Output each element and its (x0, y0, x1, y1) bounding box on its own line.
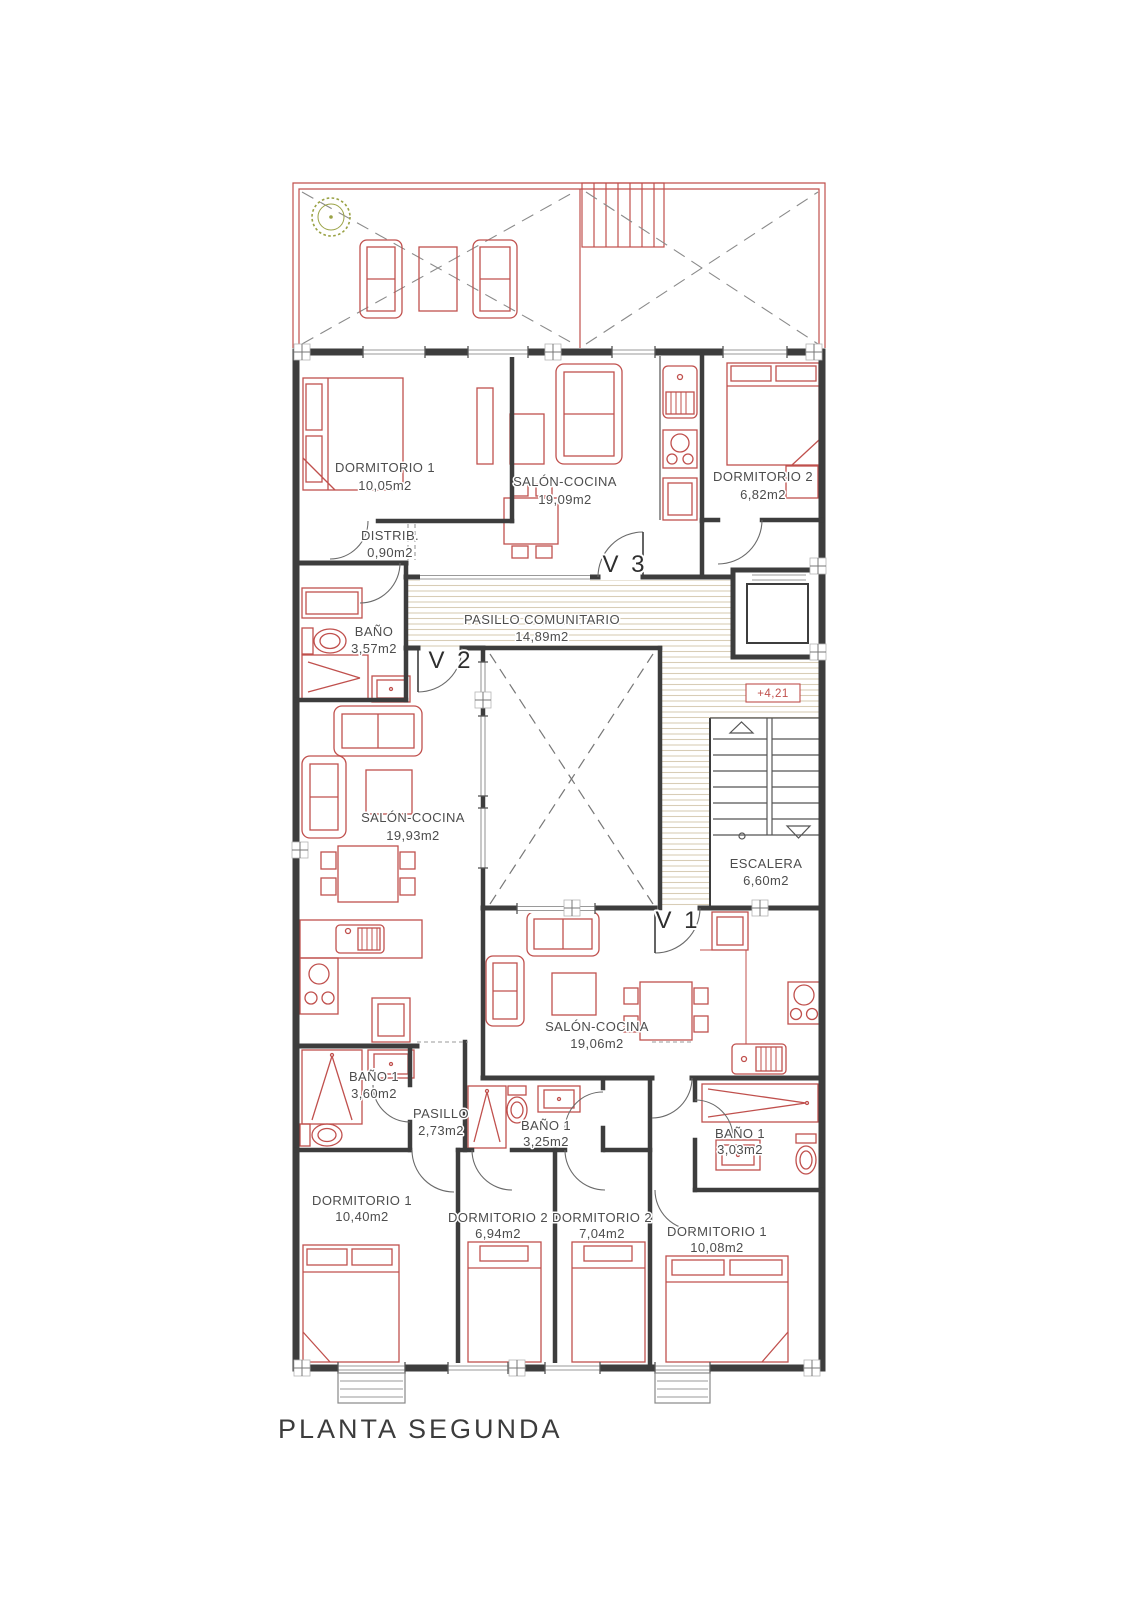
side-table-icon (366, 770, 412, 814)
stairs-up-arrow-icon (730, 722, 753, 733)
room-label-dormitorio2-top: DORMITORIO 2 (713, 469, 813, 484)
shower-icon (302, 655, 368, 700)
room-area-dormitorio1-top: 10,05m2 (358, 478, 411, 493)
kitchen-counter-edge (700, 950, 746, 1044)
window (448, 1362, 508, 1374)
room-label-pasillo-comunitario: PASILLO COMUNITARIO (464, 612, 620, 627)
kitchen-counter (300, 920, 422, 1042)
room-area-pasillo: 2,73m2 (418, 1123, 464, 1138)
sofa-icon (527, 912, 599, 956)
roof-dash-lines (302, 192, 818, 344)
shower-icon (702, 1084, 818, 1122)
room-label-salon-bottom: SALÓN-COCINA (545, 1019, 649, 1034)
bed-icon (468, 1242, 541, 1362)
kitchen-counter (660, 356, 697, 520)
room-label-dormitorio1-top: DORMITORIO 1 (335, 460, 435, 475)
entry-marker-v2: V 2 (428, 647, 473, 674)
room-label-distrib: DISTRIB. (361, 528, 419, 543)
tree-icon (312, 198, 350, 236)
room-area-dormitorio1-br: 10,08m2 (690, 1240, 743, 1255)
room-area-salon-mid: 19,93m2 (386, 828, 439, 843)
window (655, 1362, 710, 1374)
shower-icon (468, 1086, 506, 1148)
bathtub-icon (302, 588, 362, 618)
room-area-bano1-mid: 3,25m2 (523, 1134, 569, 1149)
entry-marker-v1: V 1 (655, 907, 700, 934)
armchair-icon (302, 756, 346, 838)
terrace-table-icon (419, 247, 457, 311)
sink-icon (732, 1044, 786, 1074)
entry-marker-v3: V 3 (602, 551, 647, 578)
room-label-dormitorio2-br: DORMITORIO 2 (552, 1210, 652, 1225)
appliance-icon (372, 998, 410, 1042)
fridge-icon (663, 478, 697, 520)
hob-icon (663, 430, 697, 468)
room-area-dormitorio2-br: 7,04m2 (579, 1226, 625, 1241)
window (338, 1362, 405, 1374)
hob-icon (300, 958, 338, 1014)
sofa-icon (556, 364, 622, 464)
terrace-stairs (582, 183, 664, 247)
window (517, 903, 595, 914)
room-label-salon-mid: SALÓN-COCINA (361, 810, 465, 825)
hob-icon (788, 982, 820, 1024)
room-area-salon-top: 19,09m2 (538, 492, 591, 507)
room-area-bano1-right: 3,03m2 (717, 1142, 763, 1157)
window (478, 716, 488, 796)
fridge-icon (712, 912, 748, 950)
room-label-bano1-right: BAÑO 1 (715, 1126, 765, 1141)
room-label-bano1-mid: BAÑO 1 (521, 1118, 571, 1133)
stairs-down-arrow-icon (787, 826, 810, 838)
sofa-icon (334, 706, 422, 756)
room-label-dormitorio1-br: DORMITORIO 1 (667, 1224, 767, 1239)
room-area-escalera: 6,60m2 (743, 873, 789, 888)
room-area-dormitorio1-bl: 10,40m2 (335, 1209, 388, 1224)
bed-icon (666, 1256, 788, 1362)
bed-icon (303, 1245, 399, 1362)
floor-plan-drawing: +4,21 DORMITORIO 1 10,05m2 SALÓN-COCINA … (0, 0, 1132, 1600)
window (478, 808, 488, 868)
courtyard (490, 654, 653, 904)
bed-icon (727, 363, 819, 465)
room-area-dormitorio2-top: 6,82m2 (740, 487, 786, 502)
level-marker-value: +4,21 (757, 688, 789, 700)
window (612, 346, 655, 358)
room-area-bano1-left: 3,60m2 (351, 1086, 397, 1101)
room-label-pasillo: PASILLO (413, 1106, 469, 1121)
window (545, 1362, 600, 1374)
level-marker: +4,21 (746, 684, 800, 702)
plan-title: PLANTA SEGUNDA (278, 1414, 563, 1444)
room-area-distrib: 0,90m2 (367, 545, 413, 560)
terrace (293, 183, 825, 348)
window (723, 346, 787, 358)
floor-plan-page: +4,21 DORMITORIO 1 10,05m2 SALÓN-COCINA … (0, 0, 1132, 1600)
room-label-salon-top: SALÓN-COCINA (513, 474, 617, 489)
room-label-escalera: ESCALERA (730, 856, 803, 871)
balcony (655, 1373, 710, 1403)
glazed-partition (420, 573, 590, 581)
toilet-icon (302, 628, 346, 654)
balcony (338, 1373, 405, 1403)
terrace-sofa-icon (473, 240, 517, 318)
washbasin-icon (538, 1086, 580, 1112)
room-label-bano-top: BAÑO (355, 624, 393, 639)
side-table-icon (552, 973, 596, 1015)
sink-icon (663, 366, 697, 418)
dining-table-icon (321, 846, 415, 902)
terrace-sofa-icon (360, 240, 402, 318)
room-label-dormitorio2-bl: DORMITORIO 2 (448, 1210, 548, 1225)
toilet-icon (796, 1134, 816, 1174)
stairs-handrail-end (739, 833, 745, 839)
window (468, 346, 528, 358)
coffee-table-icon (510, 414, 544, 464)
room-label-dormitorio1-bl: DORMITORIO 1 (312, 1193, 412, 1208)
armchair-icon (486, 956, 524, 1026)
room-area-salon-bottom: 19,06m2 (570, 1036, 623, 1051)
wardrobe-icon (477, 388, 493, 464)
room-label-bano1-left: BAÑO 1 (349, 1069, 399, 1084)
elevator (733, 570, 822, 657)
toilet-icon (300, 1124, 342, 1146)
room-area-bano-top: 3,57m2 (351, 641, 397, 656)
window (363, 346, 425, 358)
sink-icon (336, 925, 384, 953)
bed-icon (572, 1242, 645, 1362)
room-area-pasillo-comunitario: 14,89m2 (515, 629, 568, 644)
room-area-dormitorio2-bl: 6,94m2 (475, 1226, 521, 1241)
